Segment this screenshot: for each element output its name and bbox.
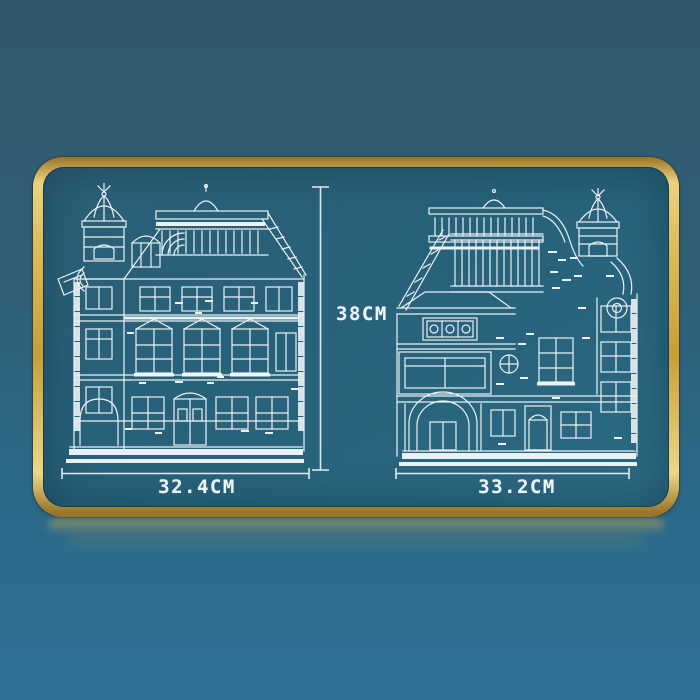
height-dimension-label: 38CM [336,303,388,325]
right-width-dimension-label: 33.2CM [478,476,556,498]
dimension-lines [0,0,700,700]
left-width-dimension-label: 32.4CM [158,476,236,498]
product-image-stage: 38CM 32.4CM 33.2CM [0,0,700,700]
